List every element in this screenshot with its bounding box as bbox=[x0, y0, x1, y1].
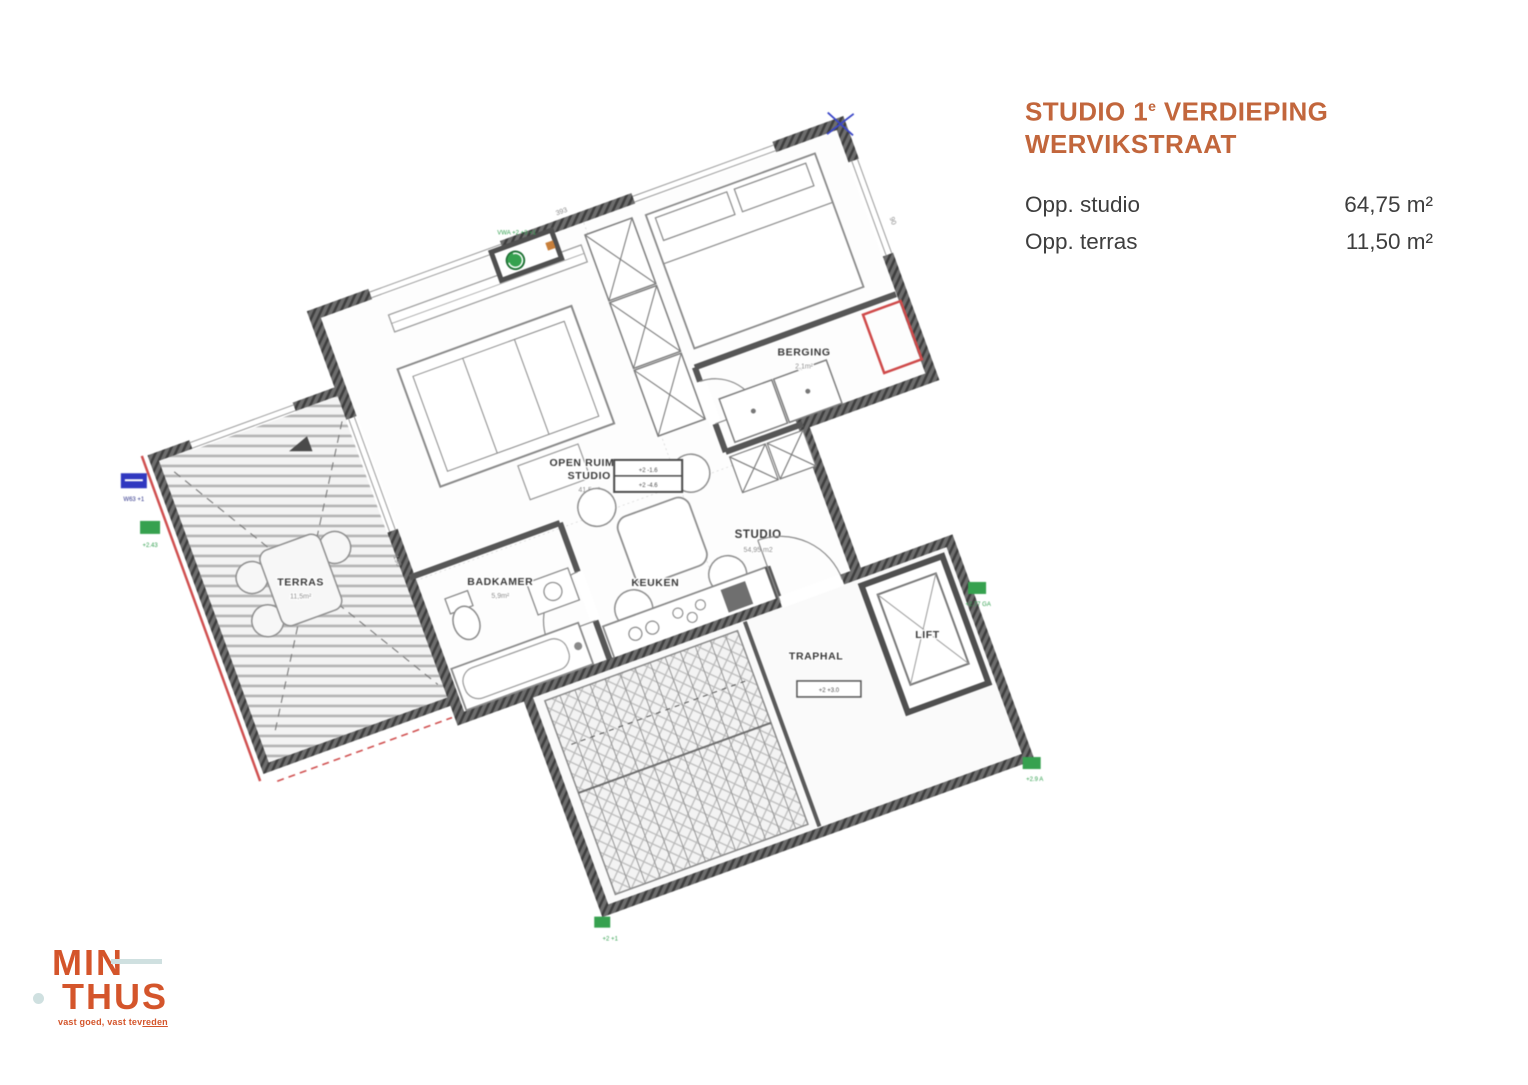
plan-rotated-group: TERRAS 11,5m² bbox=[77, 101, 1095, 1051]
room-label-terras: TERRAS bbox=[277, 576, 324, 588]
green-niche-text: VWA +2 +3 +1 bbox=[497, 230, 536, 236]
green-south-text: +2 +1 bbox=[603, 937, 619, 943]
area-table: Opp. studio 64,75 m² Opp. terras 11,50 m… bbox=[1025, 191, 1433, 255]
page-title: STUDIO 1e VERDIEPING WERVIKSTRAAT bbox=[1025, 90, 1433, 160]
blue-flag-marker: W63 +1 bbox=[121, 473, 147, 503]
logo-dot-icon bbox=[33, 993, 44, 1004]
green-southeast-text: +2.9 A bbox=[1026, 777, 1043, 783]
logo-tagline: vast goed, vast tevreden bbox=[58, 1017, 168, 1027]
area-value-studio: 64,75 m² bbox=[1344, 191, 1433, 218]
level-box-row1: +2 -1.6 bbox=[639, 468, 659, 474]
minthus-logo: MIN THUS vast goed, vast tevreden bbox=[30, 942, 210, 1042]
green-southeast-marker: +2.9 A bbox=[1023, 757, 1044, 783]
dim-north: 393 bbox=[555, 207, 568, 218]
green-west-marker: +2.43 bbox=[140, 521, 160, 549]
area-value-terras: 11,50 m² bbox=[1346, 228, 1433, 255]
room-area-badkamer: 5,9m² bbox=[491, 593, 510, 600]
traphal-level-box: +2 +3.0 bbox=[797, 681, 861, 697]
room-area-terras: 11,5m² bbox=[290, 593, 312, 600]
traphal-box-text: +2 +3.0 bbox=[819, 688, 840, 694]
green-south-marker: +2 +1 bbox=[594, 917, 618, 943]
level-box: +2 -1.6 +2 -4.6 bbox=[614, 460, 682, 492]
room-area-berging: 2,1m² bbox=[795, 363, 814, 370]
blue-flag-text: W63 +1 bbox=[123, 497, 145, 503]
room-area-studio: 54,95 m2 bbox=[744, 547, 773, 554]
room-label-badkamer: BADKAMER bbox=[467, 576, 533, 588]
room-label-open-ruimte-2: STUDIO bbox=[568, 470, 611, 482]
tagline-underlined: reden bbox=[142, 1017, 168, 1027]
room-label-berging: BERGING bbox=[777, 346, 830, 358]
title-line1-main: STUDIO 1 bbox=[1025, 97, 1148, 127]
room-label-lift: LIFT bbox=[915, 629, 940, 641]
logo-dash-icon bbox=[111, 959, 162, 964]
title-line2: WERVIKSTRAAT bbox=[1025, 129, 1237, 159]
level-box-row2: +2 -4.6 bbox=[639, 483, 659, 489]
logo-word-thus: THUS bbox=[62, 976, 168, 1018]
tagline-pre: vast goed, vast tev bbox=[58, 1017, 142, 1027]
info-panel: STUDIO 1e VERDIEPING WERVIKSTRAAT Opp. s… bbox=[1025, 90, 1433, 265]
area-label-studio: Opp. studio bbox=[1025, 191, 1140, 218]
room-label-keuken: KEUKEN bbox=[631, 577, 679, 589]
table-row: Opp. terras 11,50 m² bbox=[1025, 228, 1433, 255]
dim-east: 90 bbox=[888, 216, 897, 226]
green-west-text: +2.43 bbox=[142, 543, 158, 549]
room-label-studio: STUDIO bbox=[735, 529, 782, 541]
green-east-text: +2.77 GA bbox=[965, 602, 991, 608]
area-label-terras: Opp. terras bbox=[1025, 228, 1138, 255]
room-label-traphal: TRAPHAL bbox=[789, 651, 843, 663]
title-line1-rest: VERDIEPING bbox=[1156, 97, 1328, 127]
table-row: Opp. studio 64,75 m² bbox=[1025, 191, 1433, 218]
